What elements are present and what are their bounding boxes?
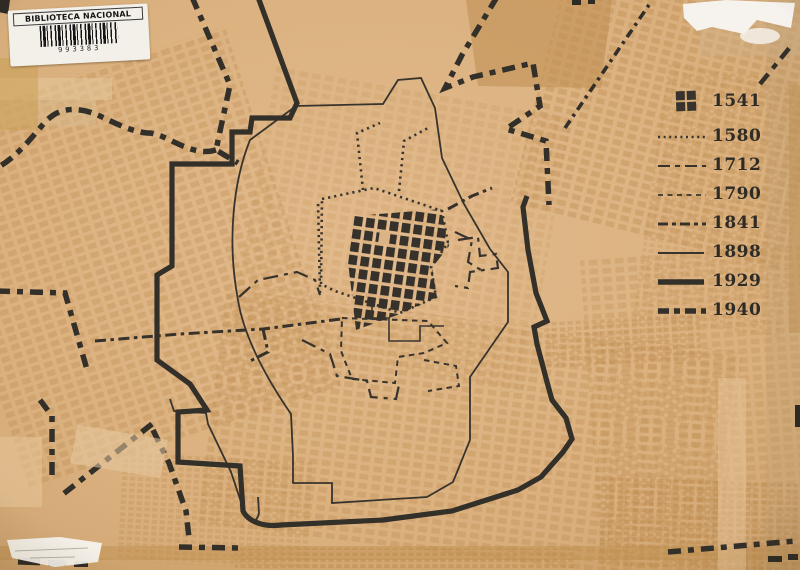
- legend-sample-1541: [656, 91, 712, 111]
- legend-item-1790: 1790: [656, 179, 786, 208]
- legend-item-1580: 1580: [656, 121, 786, 150]
- legend-item-1841: 1841: [656, 208, 786, 237]
- map-legend: 1541 1580 1712 1790 1841: [656, 86, 786, 324]
- legend-sample-1940: [656, 301, 712, 319]
- legend-year: 1940: [712, 300, 761, 320]
- legend-sample-1580: [656, 127, 712, 145]
- legend-year: 1541: [712, 91, 761, 111]
- legend-sample-1898: [656, 243, 712, 261]
- legend-item-1940: 1940: [656, 295, 786, 324]
- solid-blocks-symbol: [676, 90, 697, 111]
- legend-year: 1790: [712, 184, 761, 204]
- legend-item-1898: 1898: [656, 237, 786, 266]
- legend-year: 1580: [712, 126, 761, 146]
- scanned-map-document: 1541 1580 1712 1790 1841: [0, 0, 800, 570]
- legend-sample-1929: [656, 272, 712, 290]
- legend-year: 1841: [712, 213, 761, 233]
- legend-sample-1790: [656, 185, 712, 203]
- legend-year: 1712: [712, 155, 761, 175]
- legend-item-1712: 1712: [656, 150, 786, 179]
- library-label: BIBLIOTECA NACIONAL 993383: [8, 3, 151, 66]
- legend-sample-1712: [656, 156, 712, 174]
- legend-item-1541: 1541: [656, 86, 786, 115]
- legend-year: 1929: [712, 271, 761, 291]
- legend-item-1929: 1929: [656, 266, 786, 295]
- legend-sample-1841: [656, 214, 712, 232]
- legend-year: 1898: [712, 242, 761, 262]
